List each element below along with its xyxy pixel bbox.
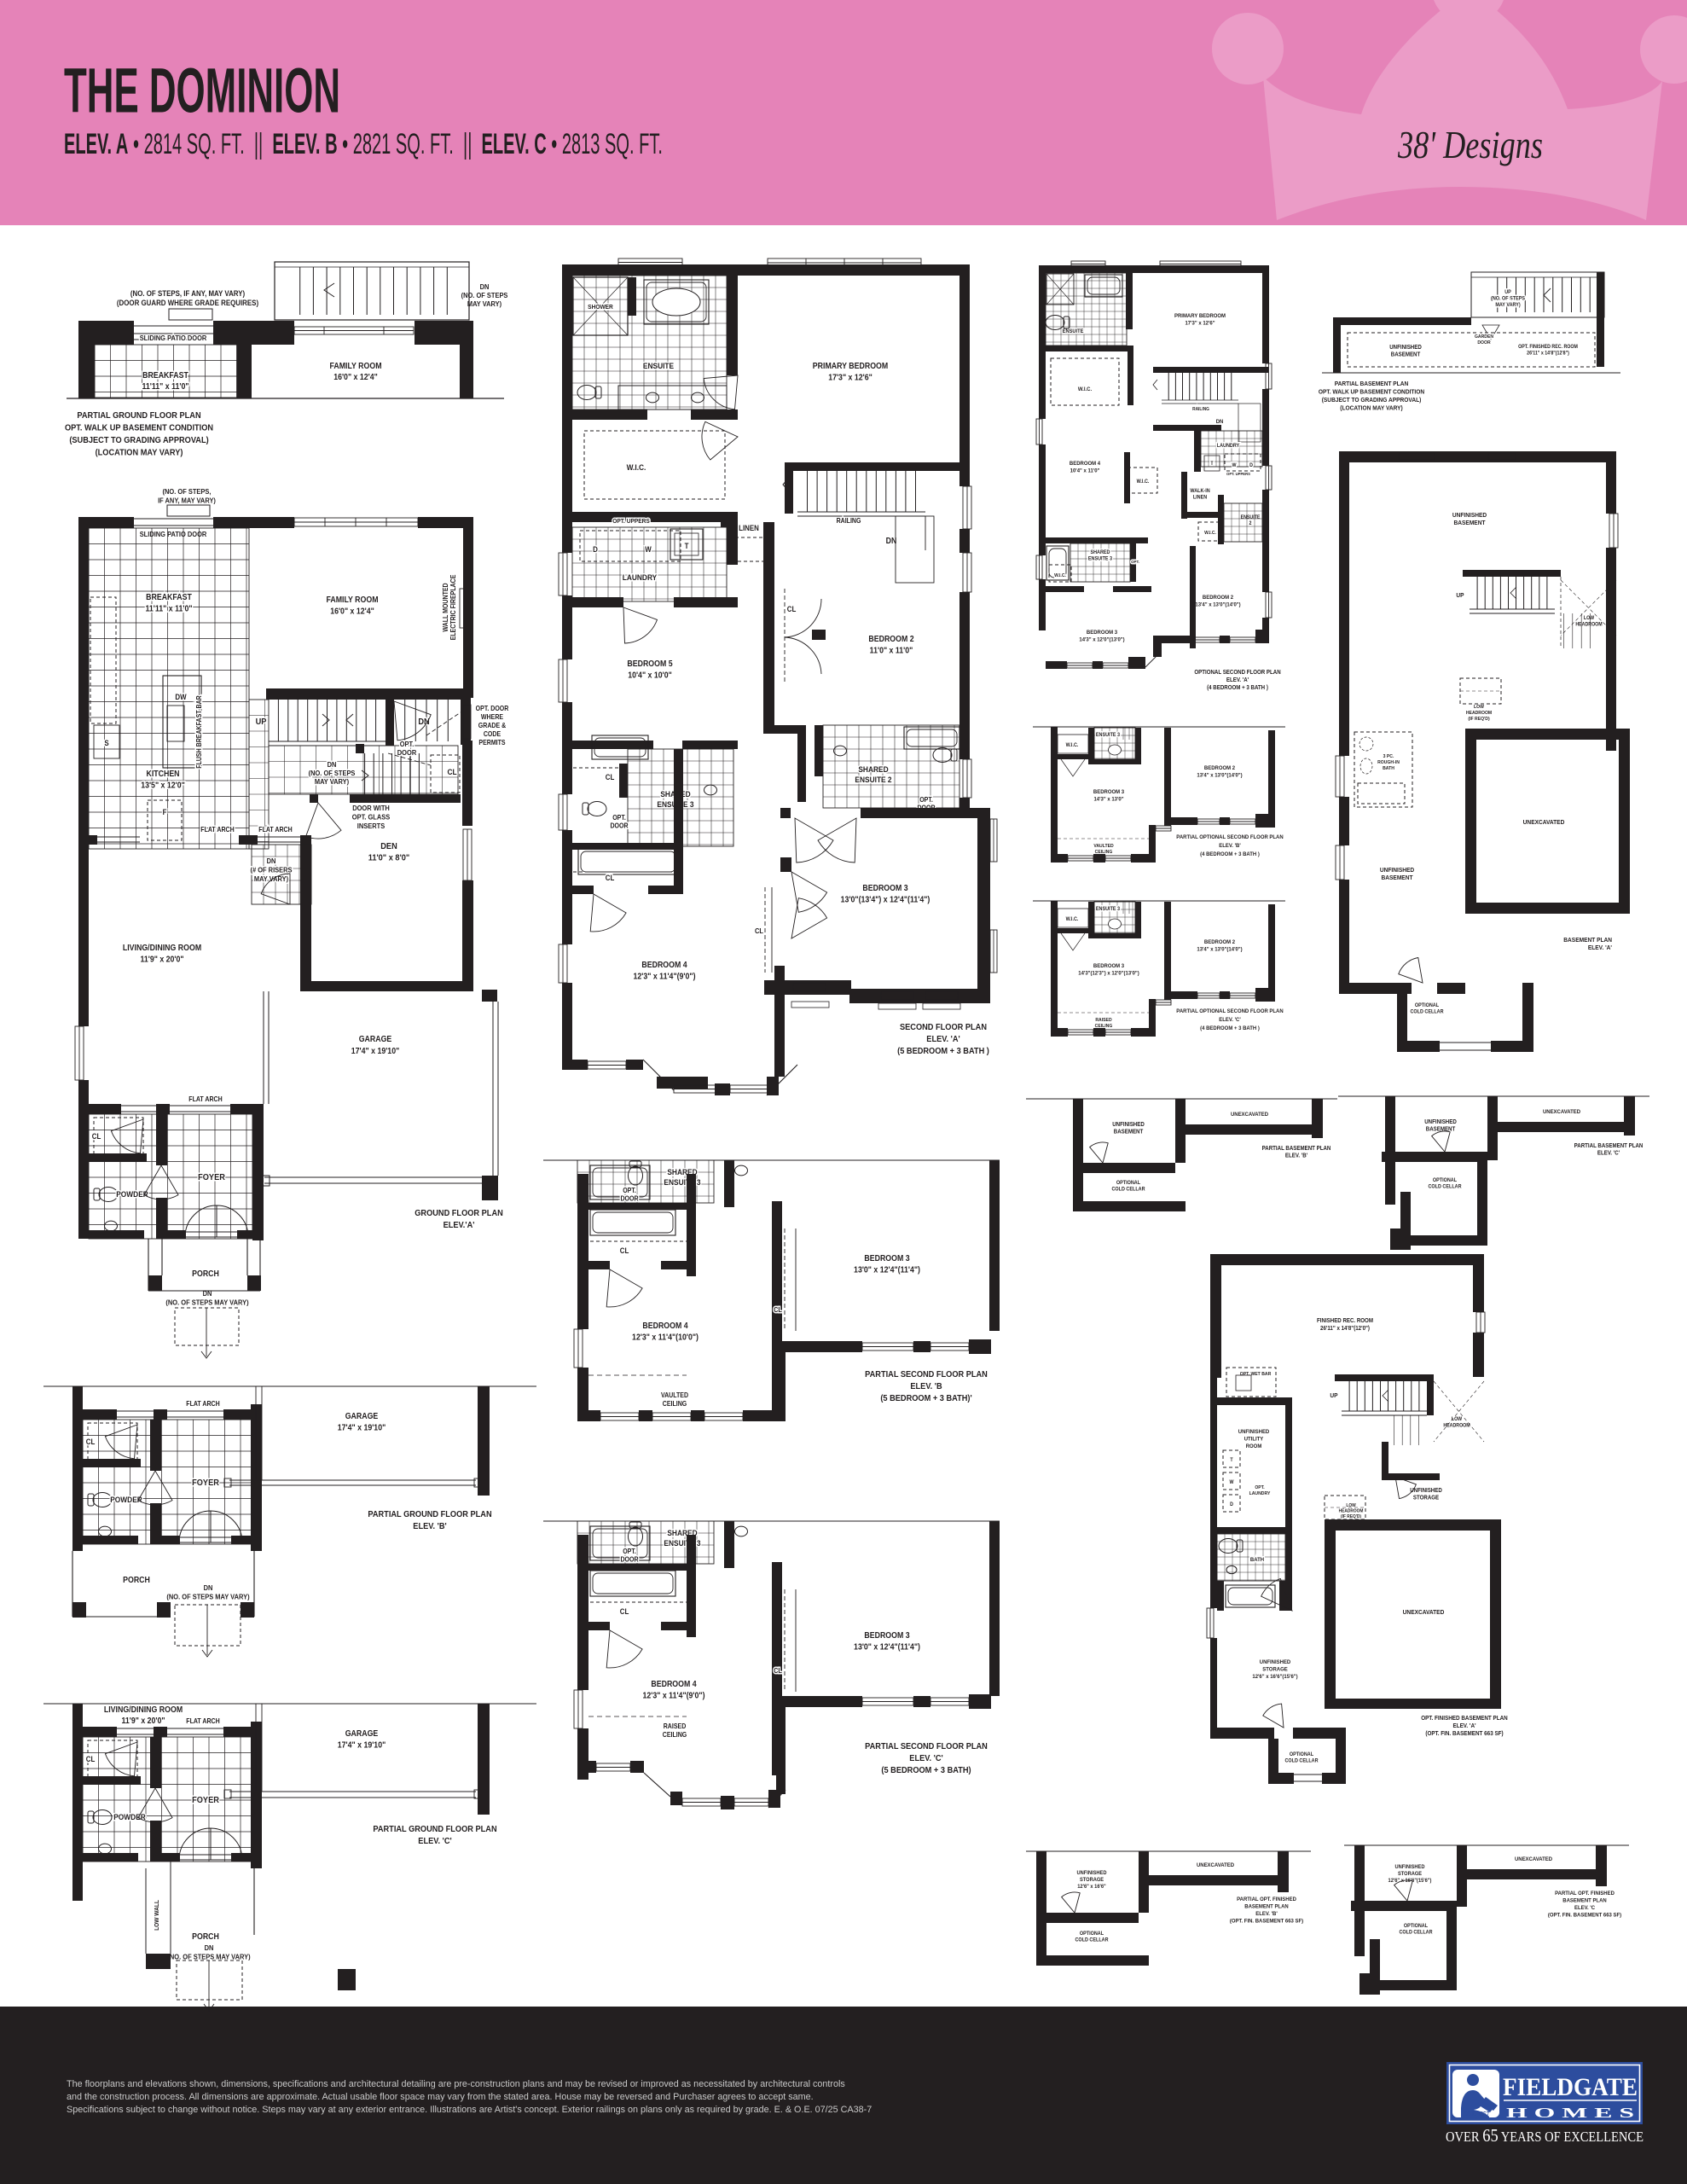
svg-text:RAISED: RAISED: [664, 1722, 687, 1731]
svg-text:ENSUITE: ENSUITE: [1063, 328, 1084, 334]
svg-text:CL: CL: [620, 1246, 629, 1256]
svg-text:13'0"(13'4") x 12'4"(11'4"): 13'0"(13'4") x 12'4"(11'4"): [841, 894, 930, 904]
svg-text:12'6" x 16'6": 12'6" x 16'6": [1077, 1884, 1106, 1890]
svg-text:UNFINISHED: UNFINISHED: [1389, 345, 1422, 351]
svg-text:BEDROOM 5: BEDROOM 5: [627, 658, 672, 668]
svg-text:FOYER: FOYER: [192, 1478, 219, 1489]
svg-text:BEDROOM 4: BEDROOM 4: [1070, 461, 1101, 467]
svg-text:(# OF RISERS: (# OF RISERS: [250, 866, 293, 874]
svg-text:(IF REQ'D): (IF REQ'D): [1341, 1514, 1361, 1519]
svg-text:W.I.C.: W.I.C.: [627, 463, 646, 473]
svg-text:DN: DN: [205, 1944, 214, 1953]
svg-text:UP: UP: [1330, 1393, 1337, 1399]
svg-text:CL: CL: [86, 1438, 96, 1447]
svg-text:POWDER: POWDER: [110, 1496, 142, 1505]
svg-text:OVER 65 YEARS OF EXCELLENCE: OVER 65 YEARS OF EXCELLENCE: [1446, 2125, 1644, 2146]
svg-text:ELEV.'A': ELEV.'A': [443, 1221, 475, 1231]
svg-text:UNFINISHED: UNFINISHED: [1395, 1864, 1425, 1870]
svg-text:BEDROOM 4: BEDROOM 4: [641, 959, 687, 969]
svg-text:PRIMARY BEDROOM: PRIMARY BEDROOM: [1174, 313, 1226, 319]
svg-text:GARAGE: GARAGE: [345, 1728, 379, 1738]
svg-text:16'0" x 12'4": 16'0" x 12'4": [330, 606, 374, 616]
svg-text:(5 BEDROOM + 3 BATH): (5 BEDROOM + 3 BATH): [881, 1766, 971, 1776]
svg-text:OPT. GLASS: OPT. GLASS: [352, 813, 391, 822]
svg-text:INSERTS: INSERTS: [357, 822, 386, 831]
svg-text:D: D: [593, 545, 598, 555]
svg-text:FLUSH BREAKFAST BAR: FLUSH BREAKFAST BAR: [195, 695, 204, 769]
svg-text:11'0" x 8'0": 11'0" x 8'0": [368, 853, 410, 863]
svg-text:(OPT. FIN. BASEMENT 663 SF): (OPT. FIN. BASEMENT 663 SF): [1425, 1731, 1503, 1737]
svg-text:UP: UP: [1456, 593, 1464, 599]
svg-text:DW: DW: [175, 693, 186, 702]
svg-text:BASEMENT: BASEMENT: [1454, 520, 1487, 526]
svg-text:17'3" x 12'6": 17'3" x 12'6": [828, 372, 872, 382]
svg-text:VAULTED: VAULTED: [661, 1391, 689, 1400]
svg-text:OPTIONAL: OPTIONAL: [1080, 1931, 1104, 1937]
svg-text:ELEV. 'B': ELEV. 'B': [1285, 1153, 1308, 1159]
svg-text:BASEMENT: BASEMENT: [1382, 875, 1414, 881]
svg-text:11'0" x 11'0": 11'0" x 11'0": [870, 645, 913, 655]
svg-text:S: S: [104, 739, 109, 748]
svg-text:D: D: [1249, 463, 1253, 468]
svg-text:GRADE &: GRADE &: [478, 722, 507, 730]
svg-text:MAY VARY): MAY VARY): [315, 778, 350, 787]
svg-text:BASEMENT: BASEMENT: [1114, 1129, 1143, 1135]
svg-text:PORCH: PORCH: [192, 1268, 219, 1278]
svg-text:W.I.C.: W.I.C.: [1054, 573, 1066, 578]
svg-text:16'0" x 12'4": 16'0" x 12'4": [333, 371, 378, 381]
svg-text:17'4" x 19'10": 17'4" x 19'10": [338, 1422, 386, 1432]
svg-text:W.I.C.: W.I.C.: [1066, 917, 1079, 922]
svg-text:OPTIONAL: OPTIONAL: [1290, 1752, 1314, 1757]
svg-text:OPT. WALK UP BASEMENT CONDITIO: OPT. WALK UP BASEMENT CONDITION: [1319, 389, 1424, 395]
svg-text:3 PC.: 3 PC.: [1383, 754, 1394, 759]
svg-text:ENSUITE 3: ENSUITE 3: [1088, 556, 1113, 561]
svg-text:PARTIAL GROUND FLOOR PLAN: PARTIAL GROUND FLOOR PLAN: [77, 411, 200, 421]
svg-text:DOOR WITH: DOOR WITH: [352, 804, 390, 813]
svg-text:FLAT ARCH: FLAT ARCH: [186, 1717, 219, 1726]
svg-text:FLAT ARCH: FLAT ARCH: [200, 826, 234, 834]
svg-text:SHOWER: SHOWER: [588, 305, 613, 311]
svg-text:OPT. FINISHED BASEMENT PLAN: OPT. FINISHED BASEMENT PLAN: [1421, 1716, 1508, 1722]
svg-text:26'11" x 14'8"(12'8"): 26'11" x 14'8"(12'8"): [1527, 351, 1569, 356]
svg-text:BEDROOM 3: BEDROOM 3: [1093, 963, 1125, 969]
svg-text:DOOR: DOOR: [610, 822, 629, 830]
svg-text:(SUBJECT TO GRADING APPROVAL): (SUBJECT TO GRADING APPROVAL): [1322, 398, 1422, 404]
svg-text:OPT. WET BAR: OPT. WET BAR: [1240, 1372, 1272, 1377]
svg-text:PARTIAL OPTIONAL SECOND FLOOR: PARTIAL OPTIONAL SECOND FLOOR PLAN: [1176, 1008, 1284, 1014]
svg-text:ELEV. 'C': ELEV. 'C': [1219, 1017, 1241, 1023]
svg-text:14'3" x 13'0": 14'3" x 13'0": [1093, 796, 1123, 802]
svg-text:UNFINISHED: UNFINISHED: [1410, 1488, 1442, 1494]
svg-text:COLD CELLAR: COLD CELLAR: [1410, 1009, 1444, 1014]
svg-text:BASEMENT: BASEMENT: [1391, 351, 1420, 357]
svg-text:LOW: LOW: [1452, 1417, 1463, 1422]
svg-text:UNFINISHED: UNFINISHED: [1380, 868, 1414, 874]
svg-text:PARTIAL SECOND FLOOR PLAN: PARTIAL SECOND FLOOR PLAN: [865, 1742, 988, 1752]
svg-text:DOOR: DOOR: [620, 1555, 639, 1564]
svg-text:KITCHEN: KITCHEN: [146, 768, 179, 778]
svg-text:LOW: LOW: [1474, 705, 1485, 710]
svg-text:12'6" x 16'6"(15'6"): 12'6" x 16'6"(15'6"): [1252, 1674, 1297, 1680]
svg-text:12'3" x 11'4"(9'0"): 12'3" x 11'4"(9'0"): [633, 971, 695, 981]
svg-text:COLD CELLAR: COLD CELLAR: [1111, 1187, 1145, 1192]
svg-text:ELEV. 'A': ELEV. 'A': [926, 1035, 959, 1045]
svg-text:H O M E S: H O M E S: [1506, 2105, 1634, 2121]
svg-text:MAY VARY): MAY VARY): [467, 300, 502, 309]
svg-text:CL: CL: [606, 773, 615, 782]
svg-text:CL: CL: [620, 1607, 629, 1617]
svg-text:(5 BEDROOM + 3 BATH ): (5 BEDROOM + 3 BATH ): [897, 1047, 989, 1057]
svg-text:and the construction process.: and the construction process. All dimens…: [67, 2092, 814, 2102]
svg-text:PARTIAL BASEMENT PLAN: PARTIAL BASEMENT PLAN: [1262, 1146, 1331, 1152]
svg-text:POWDER: POWDER: [116, 1190, 148, 1199]
svg-text:UNFINISHED: UNFINISHED: [1452, 513, 1487, 519]
svg-text:(SUBJECT TO GRADING APPROVAL): (SUBJECT TO GRADING APPROVAL): [69, 436, 208, 446]
svg-text:SLIDING PATIO DOOR: SLIDING PATIO DOOR: [140, 531, 207, 539]
svg-text:OPT.: OPT.: [612, 814, 626, 822]
svg-text:11'11" x 11'0": 11'11" x 11'0": [145, 603, 192, 613]
svg-text:HEADROOM: HEADROOM: [1575, 622, 1603, 627]
svg-text:BEDROOM 2: BEDROOM 2: [868, 633, 913, 643]
svg-text:FLAT ARCH: FLAT ARCH: [188, 1095, 222, 1104]
svg-text:FLAT ARCH: FLAT ARCH: [186, 1400, 219, 1409]
svg-text:PORCH: PORCH: [123, 1574, 150, 1584]
svg-text:ELEV. 'B': ELEV. 'B': [413, 1522, 446, 1532]
svg-text:DN: DN: [203, 1290, 212, 1298]
svg-text:BEDROOM 2: BEDROOM 2: [1203, 595, 1234, 601]
svg-text:UNFINISHED: UNFINISHED: [1238, 1429, 1270, 1435]
svg-text:UNEXCAVATED: UNEXCAVATED: [1197, 1862, 1234, 1868]
svg-text:13'4" x 13'0"(14'0"): 13'4" x 13'0"(14'0"): [1197, 772, 1242, 778]
svg-text:DOOR: DOOR: [397, 749, 417, 758]
svg-text:UP: UP: [1504, 290, 1511, 295]
svg-text:OPTIONAL: OPTIONAL: [1433, 1178, 1458, 1183]
svg-text:PARTIAL SECOND FLOOR PLAN: PARTIAL SECOND FLOOR PLAN: [865, 1370, 988, 1380]
svg-text:LAUNDRY: LAUNDRY: [1217, 444, 1240, 449]
svg-text:ENSUITE 3: ENSUITE 3: [1096, 907, 1121, 912]
svg-text:LINEN: LINEN: [739, 524, 759, 533]
svg-text:COLD CELLAR: COLD CELLAR: [1399, 1930, 1433, 1935]
svg-text:FINISHED REC. ROOM: FINISHED REC. ROOM: [1317, 1318, 1373, 1324]
svg-text:STORAGE: STORAGE: [1413, 1495, 1440, 1501]
svg-text:WALK-IN: WALK-IN: [1190, 489, 1209, 494]
svg-text:14'3" x 12'0"(13'0"): 14'3" x 12'0"(13'0"): [1079, 636, 1124, 642]
svg-text:PRIMARY BEDROOM: PRIMARY BEDROOM: [813, 360, 889, 370]
svg-text:PORCH: PORCH: [192, 1931, 219, 1941]
svg-text:BEDROOM 3: BEDROOM 3: [864, 1629, 909, 1640]
svg-text:CL: CL: [787, 605, 797, 614]
svg-text:(NO. OF STEPS,: (NO. OF STEPS,: [163, 488, 212, 497]
svg-text:(OPT. FIN. BASEMENT 663 SF): (OPT. FIN. BASEMENT 663 SF): [1548, 1912, 1621, 1918]
svg-text:OPT.: OPT.: [623, 1187, 636, 1195]
svg-text:14'3"(12'3") x 12'0"(13'0"): 14'3"(12'3") x 12'0"(13'0"): [1078, 970, 1139, 976]
svg-text:FOYER: FOYER: [192, 1796, 219, 1806]
svg-text:(IF REQ'D): (IF REQ'D): [1468, 717, 1489, 722]
svg-text:CL: CL: [92, 1132, 101, 1141]
svg-text:10'4" x 11'0": 10'4" x 11'0": [1070, 468, 1100, 473]
svg-text:BASEMENT PLAN: BASEMENT PLAN: [1562, 1897, 1607, 1903]
svg-text:BREAKFAST: BREAKFAST: [146, 591, 192, 601]
svg-text:CODE: CODE: [484, 730, 501, 739]
svg-text:FOYER: FOYER: [198, 1173, 225, 1183]
svg-text:UNFINISHED: UNFINISHED: [1424, 1119, 1457, 1125]
svg-text:STORAGE: STORAGE: [1080, 1877, 1104, 1883]
svg-text:ELEV. 'B': ELEV. 'B': [1219, 843, 1241, 849]
svg-text:26'11" x 14'8"(12'0"): 26'11" x 14'8"(12'0"): [1320, 1326, 1370, 1332]
svg-text:OPT. UPPERS: OPT. UPPERS: [1226, 472, 1250, 476]
svg-text:DOOR: DOOR: [620, 1194, 639, 1203]
svg-text:ELEV. 'B: ELEV. 'B: [910, 1382, 942, 1392]
svg-text:CL: CL: [755, 927, 763, 936]
svg-text:STORAGE: STORAGE: [1398, 1871, 1422, 1877]
svg-text:(LOCATION MAY VARY): (LOCATION MAY VARY): [1340, 405, 1402, 411]
svg-text:UNEXCAVATED: UNEXCAVATED: [1231, 1112, 1268, 1118]
svg-text:BASEMENT PLAN: BASEMENT PLAN: [1563, 938, 1612, 944]
svg-text:W.I.C.: W.I.C.: [1137, 479, 1150, 485]
svg-text:LAUNDRY: LAUNDRY: [1249, 1491, 1271, 1496]
svg-text:(NO. OF STEPS, IF ANY, MAY VAR: (NO. OF STEPS, IF ANY, MAY VARY): [130, 289, 245, 299]
svg-text:FLAT ARCH: FLAT ARCH: [258, 826, 292, 834]
svg-text:10'4" x 10'0": 10'4" x 10'0": [628, 670, 672, 680]
svg-text:(DOOR GUARD WHERE GRADE REQUIR: (DOOR GUARD WHERE GRADE REQUIRES): [117, 299, 258, 308]
svg-text:OPT. WALK UP BASEMENT CONDITIO: OPT. WALK UP BASEMENT CONDITION: [65, 423, 213, 433]
svg-text:CL: CL: [86, 1755, 96, 1764]
svg-text:17'3" x 12'6": 17'3" x 12'6": [1185, 320, 1215, 326]
svg-text:ELEV. 'C': ELEV. 'C': [909, 1754, 942, 1764]
svg-text:BEDROOM 3: BEDROOM 3: [862, 882, 907, 892]
svg-text:DN: DN: [418, 717, 429, 728]
svg-text:POWDER: POWDER: [113, 1813, 146, 1822]
svg-text:PARTIAL OPT. FINISHED: PARTIAL OPT. FINISHED: [1555, 1891, 1615, 1896]
svg-text:ELEV. A • 2814 SQ. FT. || EL: ELEV. A • 2814 SQ. FT. || ELEV. B • 2821…: [64, 128, 663, 160]
svg-text:MAY VARY): MAY VARY): [1495, 303, 1520, 308]
svg-text:BASEMENT PLAN: BASEMENT PLAN: [1244, 1903, 1289, 1909]
svg-text:SHARED: SHARED: [1090, 550, 1110, 555]
svg-text:RAILING: RAILING: [837, 517, 861, 526]
svg-text:OPTIONAL SECOND FLOOR PLAN: OPTIONAL SECOND FLOOR PLAN: [1194, 670, 1281, 676]
svg-text:UNEXCAVATED: UNEXCAVATED: [1403, 1610, 1445, 1616]
svg-text:PARTIAL GROUND FLOOR PLAN: PARTIAL GROUND FLOOR PLAN: [373, 1825, 496, 1835]
svg-text:(LOCATION MAY VARY): (LOCATION MAY VARY): [96, 448, 183, 458]
svg-text:(4 BEDROOM + 3 BATH ): (4 BEDROOM + 3 BATH ): [1207, 685, 1268, 691]
svg-text:COLD CELLAR: COLD CELLAR: [1284, 1758, 1319, 1763]
svg-text:DEN: DEN: [380, 842, 397, 852]
svg-text:W.I.C.: W.I.C.: [1066, 743, 1079, 748]
svg-text:2: 2: [1249, 521, 1252, 526]
svg-text:ELEV. 'B': ELEV. 'B': [1255, 1911, 1278, 1917]
svg-text:ROUGH-IN: ROUGH-IN: [1377, 760, 1400, 765]
svg-text:13'5" x 12'0": 13'5" x 12'0": [141, 780, 185, 790]
svg-text:BREAKFAST: BREAKFAST: [142, 369, 188, 380]
svg-text:DN: DN: [204, 1584, 213, 1593]
svg-text:FAMILY ROOM: FAMILY ROOM: [326, 594, 378, 604]
svg-text:LAUNDRY: LAUNDRY: [623, 573, 658, 583]
svg-text:UP: UP: [256, 717, 267, 728]
svg-text:HEADROOM: HEADROOM: [1466, 711, 1493, 716]
svg-text:ELECTRIC FIREPLACE: ELECTRIC FIREPLACE: [449, 575, 458, 641]
svg-text:(4 BEDROOM + 3 BATH ): (4 BEDROOM + 3 BATH ): [1200, 1025, 1260, 1031]
svg-text:W.I.C.: W.I.C.: [1204, 531, 1216, 536]
svg-text:17'4" x 19'10": 17'4" x 19'10": [351, 1045, 400, 1055]
svg-text:T: T: [1210, 462, 1214, 467]
svg-text:ELEV. 'C': ELEV. 'C': [1597, 1150, 1620, 1156]
svg-text:BEDROOM 4: BEDROOM 4: [642, 1320, 688, 1330]
svg-text:PARTIAL GROUND FLOOR PLAN: PARTIAL GROUND FLOOR PLAN: [368, 1510, 491, 1520]
svg-text:DN: DN: [480, 283, 490, 292]
svg-text:OPTIONAL: OPTIONAL: [1404, 1924, 1429, 1929]
svg-text:UNFINISHED: UNFINISHED: [1077, 1870, 1107, 1876]
svg-text:PARTIAL BASEMENT PLAN: PARTIAL BASEMENT PLAN: [1574, 1143, 1644, 1149]
svg-text:LOW: LOW: [1346, 1503, 1355, 1508]
svg-text:ELEV. 'A': ELEV. 'A': [1452, 1723, 1475, 1729]
svg-text:UNFINISHED: UNFINISHED: [1260, 1659, 1291, 1665]
svg-text:CL: CL: [774, 1306, 782, 1315]
svg-text:12'3" x 11'4"(10'0"): 12'3" x 11'4"(10'0"): [632, 1332, 699, 1342]
svg-text:UNEXCAVATED: UNEXCAVATED: [1515, 1856, 1552, 1862]
svg-text:W: W: [1232, 463, 1238, 468]
svg-text:CL: CL: [447, 768, 457, 777]
svg-text:MAY VARY): MAY VARY): [254, 875, 289, 884]
svg-text:RAISED: RAISED: [1095, 1018, 1111, 1023]
svg-text:13'4" x 13'0"(14'0"): 13'4" x 13'0"(14'0"): [1195, 601, 1240, 607]
svg-text:(NO. OF STEPS: (NO. OF STEPS: [309, 770, 356, 778]
svg-text:LINEN: LINEN: [1193, 495, 1207, 500]
svg-text:ELEV. 'C: ELEV. 'C: [1574, 1905, 1595, 1911]
svg-text:W: W: [645, 545, 651, 555]
svg-text:13'0" x 12'4"(11'4"): 13'0" x 12'4"(11'4"): [854, 1641, 920, 1652]
svg-text:BATH: BATH: [1250, 1557, 1264, 1563]
svg-text:OPT. UPPERS: OPT. UPPERS: [612, 519, 650, 525]
svg-text:OPT.: OPT.: [623, 1548, 636, 1556]
svg-text:Specifications subject to chan: Specifications subject to change without…: [67, 2105, 872, 2115]
svg-text:W: W: [1230, 1480, 1235, 1485]
svg-text:UTILITY: UTILITY: [1244, 1436, 1264, 1442]
svg-text:BEDROOM 3: BEDROOM 3: [1093, 789, 1125, 795]
svg-text:LOW WALL: LOW WALL: [154, 1899, 160, 1930]
svg-text:ELEV. 'C': ELEV. 'C': [418, 1837, 451, 1847]
svg-text:OPT.: OPT.: [1131, 560, 1139, 564]
svg-text:(OPT. FIN. BASEMENT 663 SF): (OPT. FIN. BASEMENT 663 SF): [1230, 1918, 1303, 1924]
svg-text:BEDROOM 4: BEDROOM 4: [651, 1678, 697, 1688]
svg-text:ROOM: ROOM: [1246, 1443, 1262, 1449]
svg-text:SECOND FLOOR PLAN: SECOND FLOOR PLAN: [900, 1023, 987, 1033]
svg-text:PARTIAL OPT. FINISHED: PARTIAL OPT. FINISHED: [1237, 1896, 1296, 1902]
svg-text:STORAGE: STORAGE: [1262, 1666, 1288, 1672]
svg-text:PARTIAL OPTIONAL SECOND FLOOR: PARTIAL OPTIONAL SECOND FLOOR PLAN: [1176, 834, 1284, 840]
svg-text:OPT.: OPT.: [1255, 1485, 1265, 1490]
svg-text:SLIDING PATIO DOOR: SLIDING PATIO DOOR: [140, 334, 207, 343]
svg-text:BEDROOM 2: BEDROOM 2: [1204, 939, 1236, 945]
svg-text:BEDROOM 3: BEDROOM 3: [864, 1252, 909, 1263]
svg-text:PARTIAL BASEMENT PLAN: PARTIAL BASEMENT PLAN: [1335, 381, 1408, 387]
svg-text:CL: CL: [606, 874, 615, 883]
svg-text:13'4" x 13'0"(14'0"): 13'4" x 13'0"(14'0"): [1197, 946, 1242, 952]
svg-text:OPT. DOOR: OPT. DOOR: [476, 705, 509, 713]
svg-text:VAULTED: VAULTED: [1093, 844, 1113, 849]
svg-text:OPTIONAL: OPTIONAL: [1415, 1003, 1440, 1008]
svg-text:(4 BEDROOM + 3 BATH ): (4 BEDROOM + 3 BATH ): [1200, 851, 1260, 857]
svg-text:UNEXCAVATED: UNEXCAVATED: [1543, 1109, 1580, 1115]
svg-text:DN: DN: [1216, 419, 1224, 425]
svg-text:ENSUITE: ENSUITE: [1241, 515, 1261, 520]
svg-text:COLD CELLAR: COLD CELLAR: [1075, 1937, 1109, 1943]
svg-text:OPT.: OPT.: [919, 796, 933, 804]
svg-text:(NO. OF STEPS MAY VARY): (NO. OF STEPS MAY VARY): [167, 1953, 250, 1961]
svg-text:OPT.: OPT.: [400, 741, 415, 749]
svg-text:T: T: [1230, 1458, 1233, 1463]
svg-text:COLD CELLAR: COLD CELLAR: [1428, 1184, 1462, 1189]
svg-text:IF ANY, MAY VARY): IF ANY, MAY VARY): [158, 497, 216, 505]
svg-text:DN: DN: [267, 857, 276, 866]
svg-text:ENSUITE 3: ENSUITE 3: [1096, 733, 1121, 738]
svg-text:T: T: [685, 542, 690, 551]
svg-text:FIELDGATE: FIELDGATE: [1503, 2073, 1638, 2101]
svg-text:17'4" x 19'10": 17'4" x 19'10": [338, 1740, 386, 1750]
svg-text:HEADROOM: HEADROOM: [1443, 1423, 1470, 1428]
svg-text:(NO. OF STEPS: (NO. OF STEPS: [461, 292, 508, 300]
svg-text:13'0" x 12'4"(11'4"): 13'0" x 12'4"(11'4"): [854, 1264, 920, 1275]
svg-text:12'3" x 11'4"(9'0"): 12'3" x 11'4"(9'0"): [642, 1690, 704, 1700]
svg-text:BEDROOM 3: BEDROOM 3: [1087, 630, 1118, 636]
svg-text:CEILING: CEILING: [663, 1731, 687, 1740]
svg-text:UNFINISHED: UNFINISHED: [1112, 1122, 1145, 1128]
svg-text:LOW: LOW: [1584, 616, 1595, 621]
svg-text:THE DOMINION: THE DOMINION: [64, 55, 340, 126]
svg-text:D: D: [1230, 1502, 1233, 1507]
svg-text:SHARED: SHARED: [858, 765, 889, 775]
svg-text:RAILING: RAILING: [1192, 407, 1209, 412]
svg-text:DN: DN: [328, 761, 337, 770]
svg-text:DOOR: DOOR: [1477, 340, 1490, 346]
svg-text:LIVING/DINING ROOM: LIVING/DINING ROOM: [104, 1704, 183, 1714]
svg-text:HEADROOM: HEADROOM: [1339, 1508, 1364, 1513]
svg-text:11'11" x 11'0": 11'11" x 11'0": [142, 380, 188, 391]
svg-text:CEILING: CEILING: [663, 1400, 687, 1409]
svg-text:BEDROOM 2: BEDROOM 2: [1204, 765, 1236, 771]
svg-text:OPTIONAL: OPTIONAL: [1116, 1181, 1141, 1186]
svg-text:W.I.C.: W.I.C.: [1078, 386, 1092, 392]
svg-text:ELEV. 'A': ELEV. 'A': [1588, 945, 1612, 951]
svg-text:OPT. FINISHED REC. ROOM: OPT. FINISHED REC. ROOM: [1518, 345, 1578, 350]
svg-text:38' Designs: 38' Designs: [1397, 123, 1543, 166]
svg-text:F: F: [163, 808, 167, 817]
svg-text:The floorplans and elevations: The floorplans and elevations shown, dim…: [67, 2079, 845, 2089]
svg-text:PERMITS: PERMITS: [478, 739, 505, 747]
svg-text:(NO. OF STEPS MAY VARY): (NO. OF STEPS MAY VARY): [166, 1593, 249, 1601]
svg-text:GARAGE: GARAGE: [345, 1410, 379, 1420]
svg-text:UNEXCAVATED: UNEXCAVATED: [1523, 820, 1565, 826]
svg-text:(5 BEDROOM + 3 BATH)': (5 BEDROOM + 3 BATH)': [880, 1394, 971, 1404]
svg-text:ELEV. 'A': ELEV. 'A': [1226, 677, 1249, 683]
svg-text:GARDEN: GARDEN: [1475, 334, 1493, 340]
svg-text:(NO. OF STEPS: (NO. OF STEPS: [1491, 296, 1525, 301]
svg-text:GROUND FLOOR PLAN: GROUND FLOOR PLAN: [415, 1209, 503, 1219]
svg-text:WHERE: WHERE: [481, 713, 503, 722]
svg-text:ENSUITE 2: ENSUITE 2: [855, 775, 891, 785]
svg-text:ENSUITE: ENSUITE: [643, 362, 674, 371]
svg-text:11'9" x 20'0": 11'9" x 20'0": [140, 954, 183, 964]
svg-text:(NO. OF STEPS MAY VARY): (NO. OF STEPS MAY VARY): [165, 1298, 248, 1307]
svg-text:11'9" x 20'0": 11'9" x 20'0": [121, 1715, 165, 1725]
svg-text:LIVING/DINING ROOM: LIVING/DINING ROOM: [123, 942, 201, 952]
svg-text:EST. 1957: EST. 1957: [1464, 2111, 1490, 2117]
svg-text:CL: CL: [774, 1667, 782, 1676]
svg-text:GARAGE: GARAGE: [359, 1033, 392, 1043]
svg-text:FAMILY ROOM: FAMILY ROOM: [329, 360, 381, 370]
svg-text:BATH: BATH: [1383, 766, 1394, 771]
